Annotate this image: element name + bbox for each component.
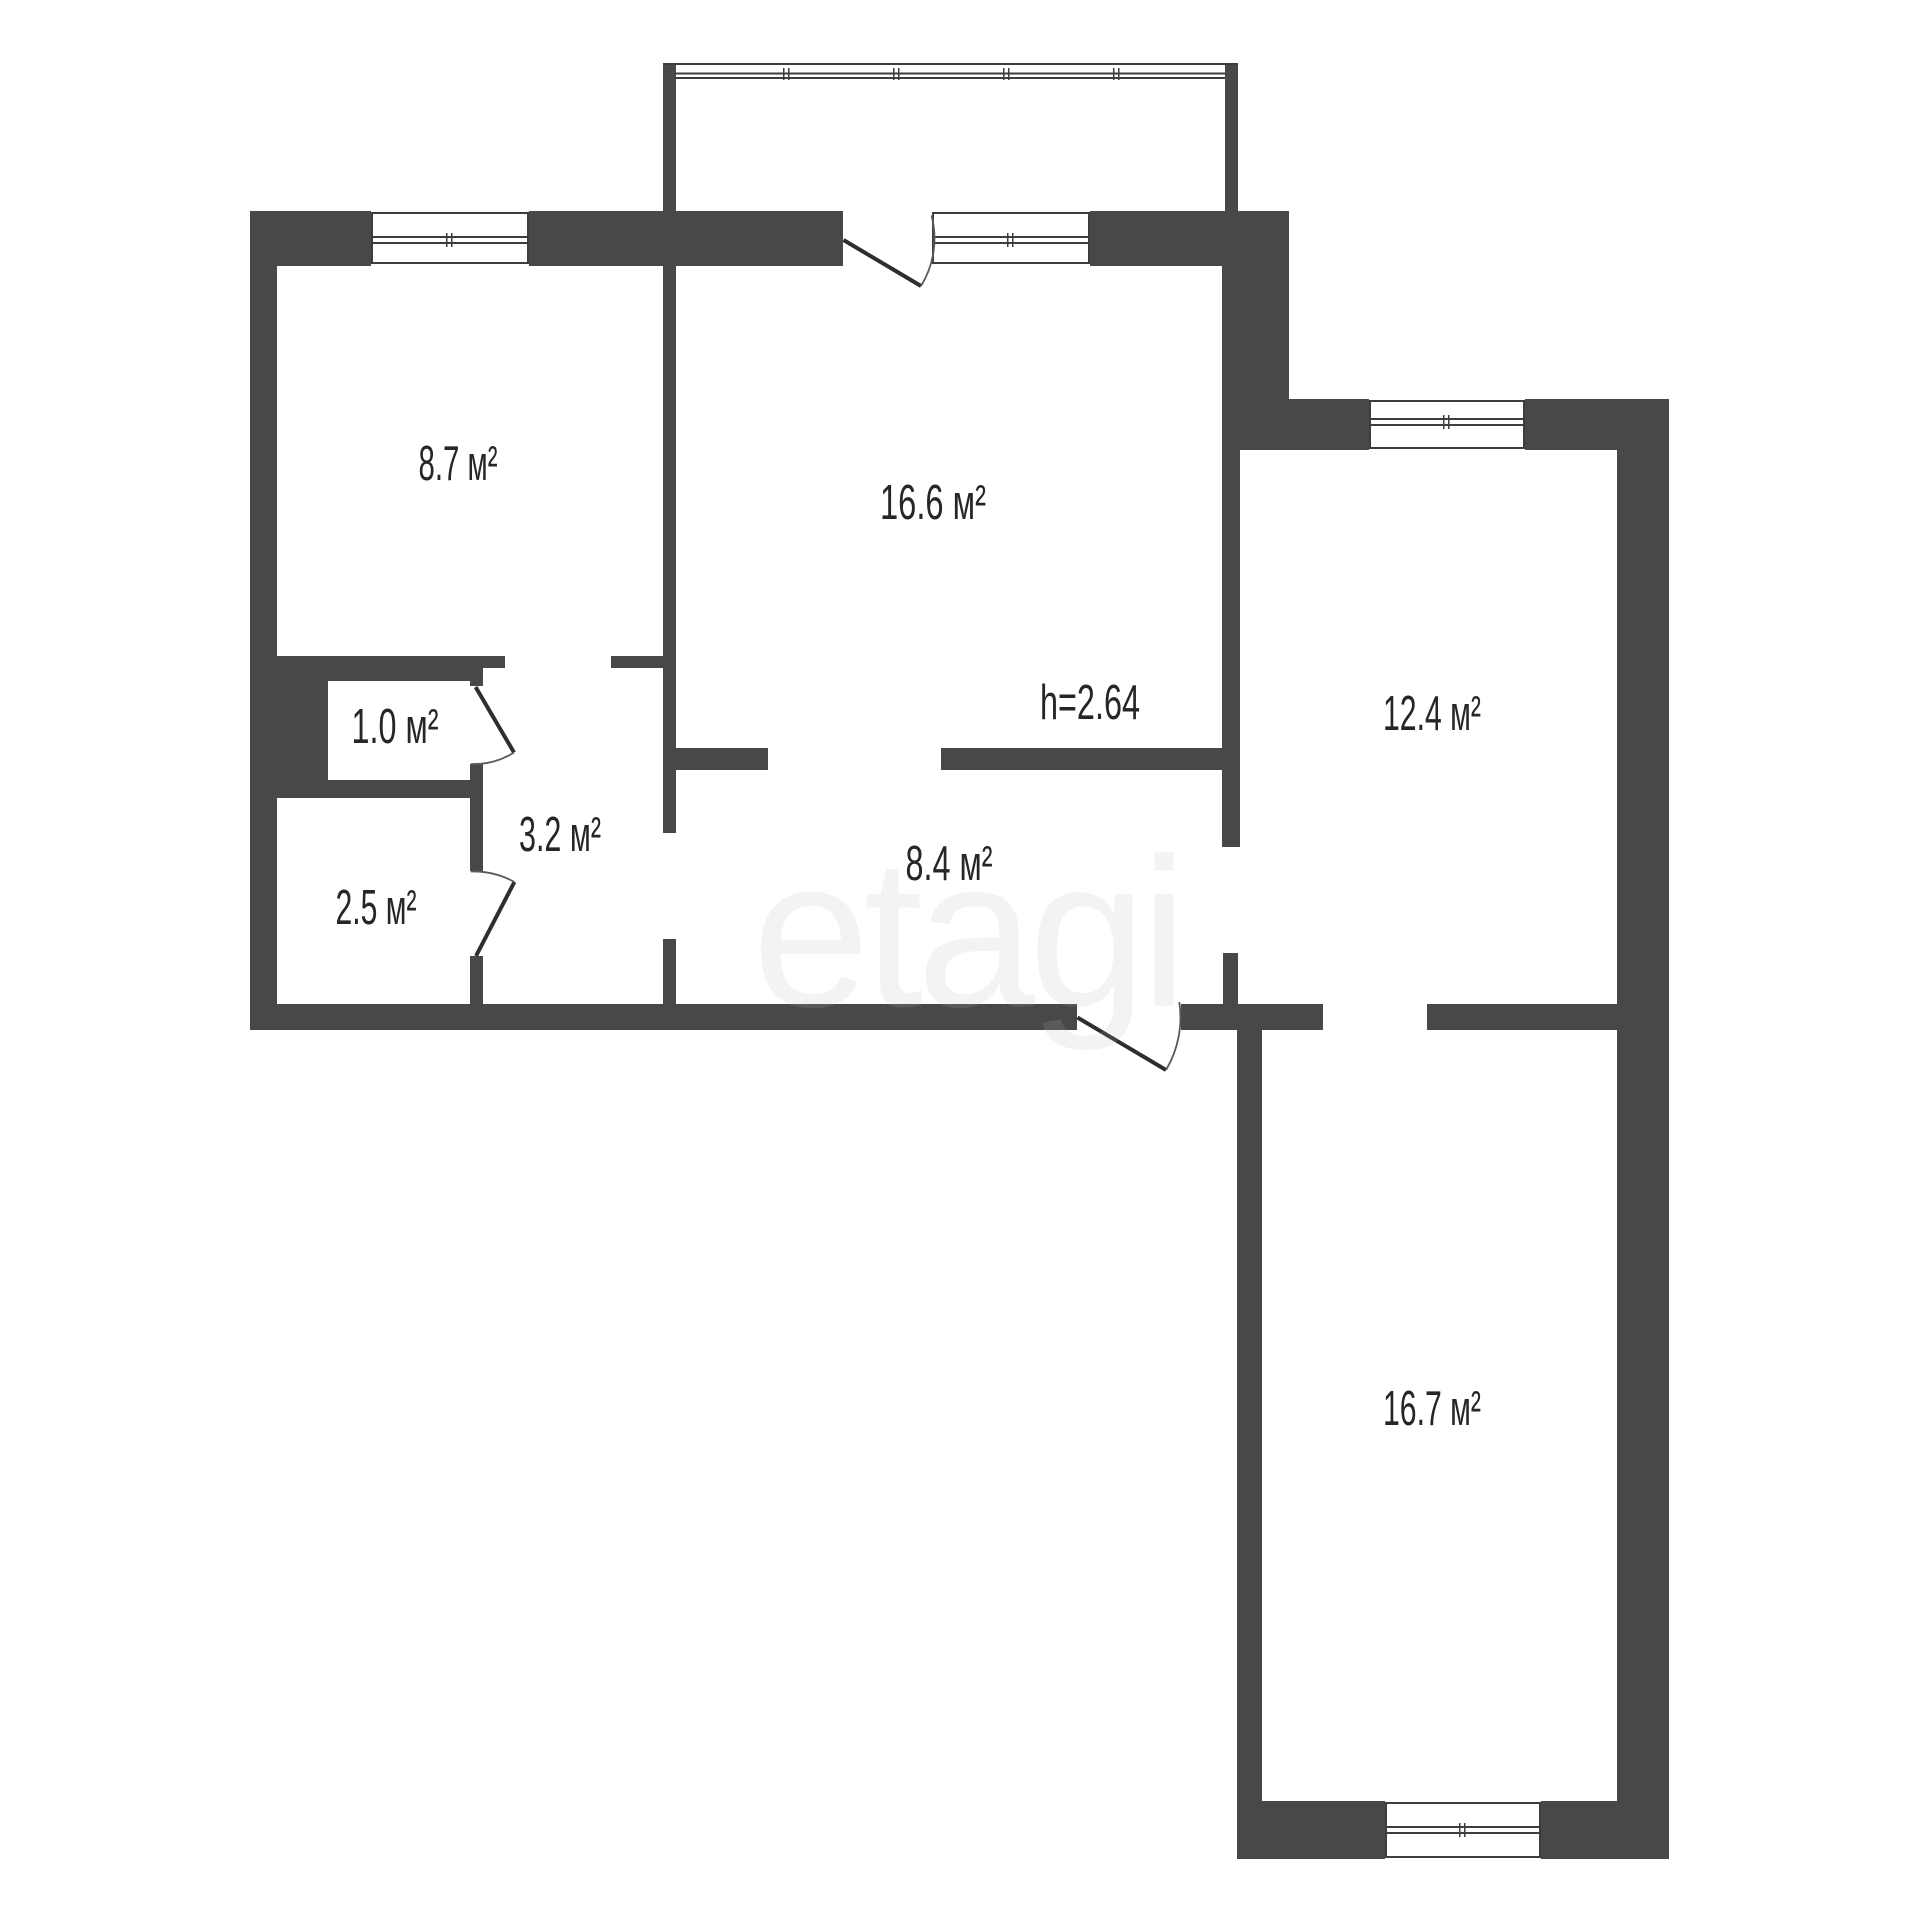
svg-text:16.6 м²: 16.6 м²	[880, 476, 986, 530]
svg-text:12.4 м²: 12.4 м²	[1383, 687, 1481, 741]
svg-text:16.7 м²: 16.7 м²	[1383, 1382, 1481, 1436]
svg-text:1.0 м²: 1.0 м²	[352, 700, 439, 754]
svg-text:3.2 м²: 3.2 м²	[519, 808, 601, 862]
svg-text:h=2.64: h=2.64	[1040, 676, 1140, 730]
svg-text:2.5 м²: 2.5 м²	[336, 881, 417, 935]
svg-text:8.4 м²: 8.4 м²	[906, 837, 993, 891]
svg-text:8.7 м²: 8.7 м²	[419, 437, 498, 491]
